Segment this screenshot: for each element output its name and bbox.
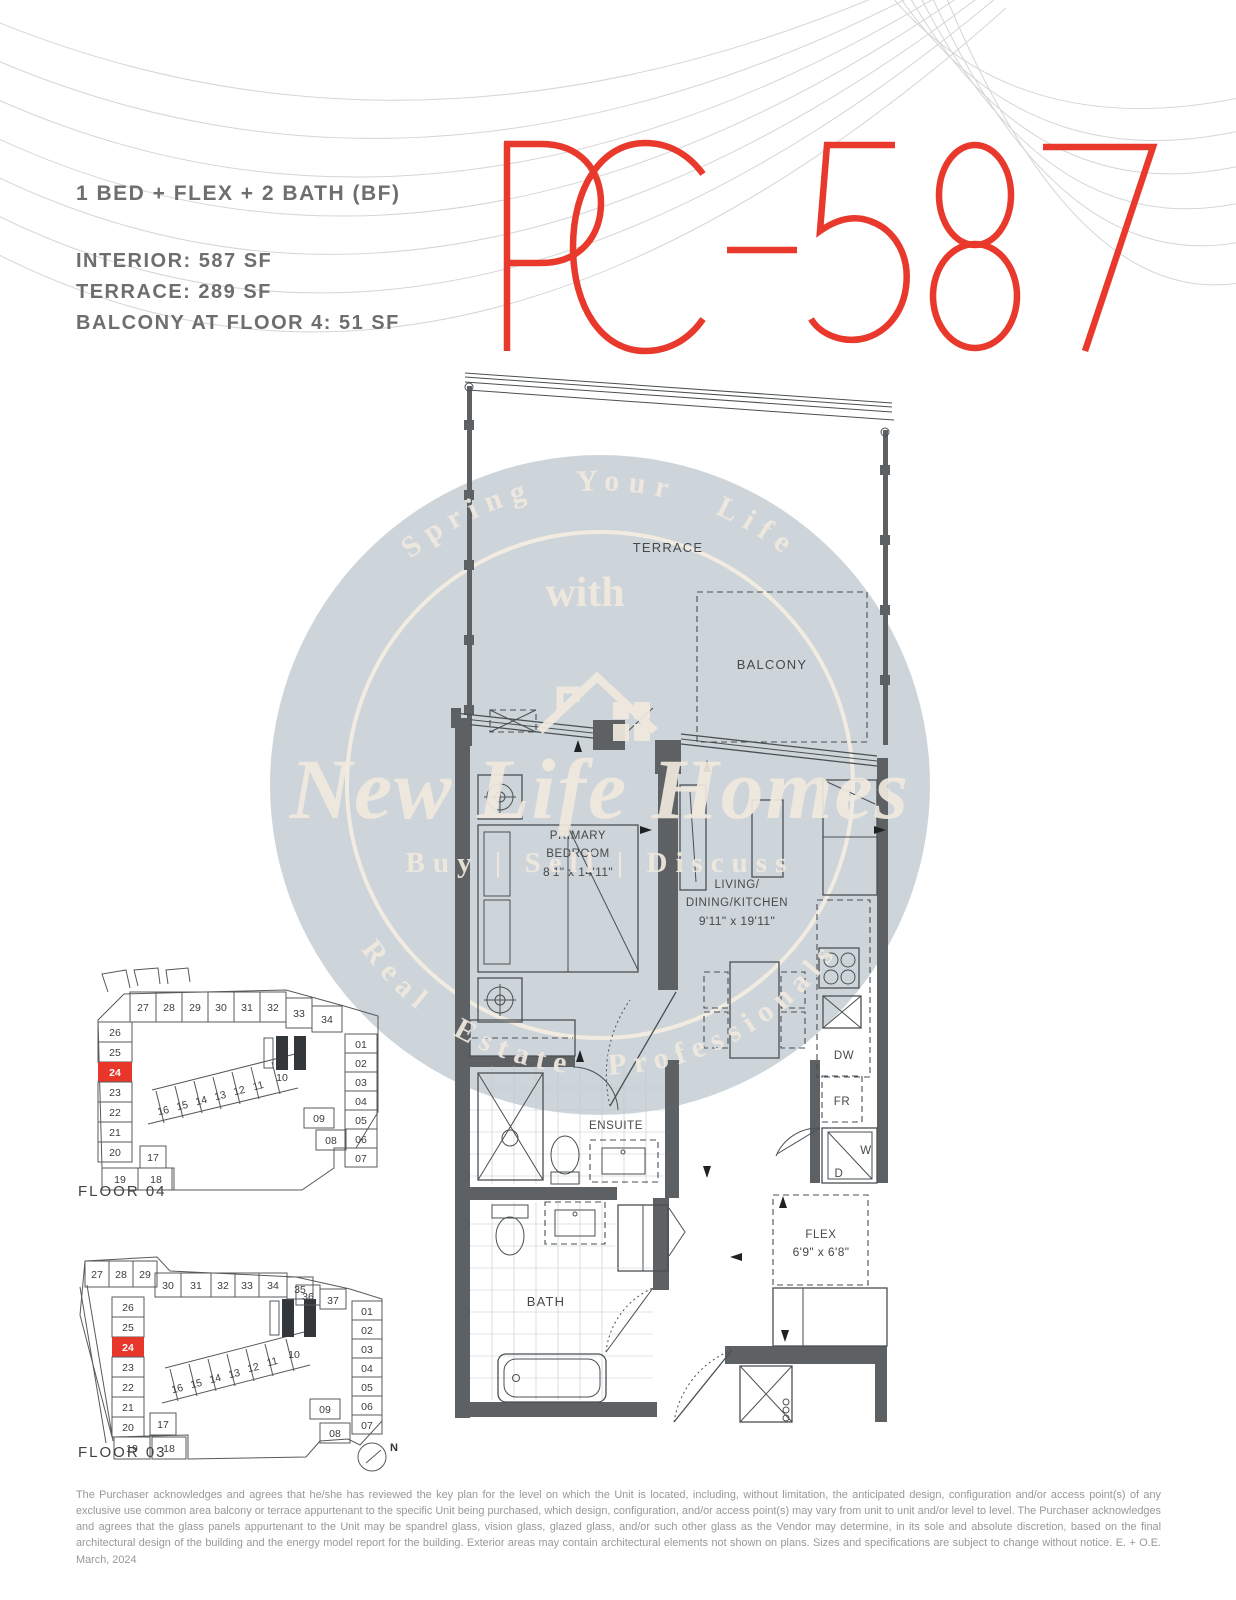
svg-text:29: 29 [139, 1269, 151, 1281]
svg-text:32: 32 [267, 1002, 279, 1014]
dishwasher-label: DW [834, 1050, 854, 1062]
svg-text:11: 11 [252, 1079, 266, 1093]
svg-text:31: 31 [241, 1002, 253, 1014]
svg-text:23: 23 [122, 1362, 134, 1374]
svg-text:22: 22 [122, 1382, 134, 1394]
svg-text:06: 06 [361, 1401, 373, 1413]
unit-type-label: 1 BED + FLEX + 2 BATH (BF) [76, 182, 400, 206]
svg-text:33: 33 [293, 1008, 305, 1020]
svg-text:27: 27 [137, 1002, 149, 1014]
svg-text:21: 21 [109, 1127, 121, 1139]
linen-closet [618, 1205, 685, 1271]
elevator-shaft [740, 1366, 792, 1422]
svg-text:37: 37 [327, 1295, 339, 1307]
bedroom-label-1: PRIMARY [550, 830, 606, 842]
svg-text:36: 36 [302, 1291, 314, 1303]
floor-04-label: FLOOR 04 [78, 1183, 167, 1200]
svg-text:09: 09 [313, 1113, 325, 1125]
svg-text:04: 04 [355, 1096, 367, 1108]
svg-text:32: 32 [217, 1280, 229, 1292]
unit-code-glyphs [495, 138, 1160, 356]
svg-text:12: 12 [246, 1361, 260, 1376]
svg-text:05: 05 [355, 1115, 367, 1127]
balcony-label: BALCONY [737, 657, 808, 672]
svg-text:07: 07 [361, 1420, 373, 1432]
sofa [823, 780, 886, 895]
svg-text:15: 15 [175, 1099, 189, 1114]
flex-dims: 6'9" x 6'8" [793, 1245, 850, 1259]
svg-text:23: 23 [109, 1087, 121, 1099]
living-dims: 9'11" x 19'11" [699, 914, 775, 928]
washer-label: W [860, 1145, 871, 1157]
svg-text:34: 34 [321, 1014, 333, 1026]
terrace-railing [464, 373, 894, 746]
dining-table [704, 962, 805, 1058]
svg-text:03: 03 [355, 1077, 367, 1089]
floor-03-label: FLOOR 03 [78, 1444, 167, 1461]
svg-text:27: 27 [91, 1269, 103, 1281]
svg-text:20: 20 [109, 1147, 121, 1159]
svg-text:02: 02 [355, 1058, 367, 1070]
svg-text:30: 30 [162, 1280, 174, 1292]
terrace-area: TERRACE: 289 SF [76, 277, 400, 308]
svg-text:07: 07 [355, 1153, 367, 1165]
nightstand-lamp-bottom [478, 978, 522, 1022]
ensuite-shower [478, 1073, 543, 1180]
ensuite-label: ENSUITE [589, 1120, 643, 1132]
balcony-area: BALCONY AT FLOOR 4: 51 SF [76, 308, 400, 339]
svg-text:28: 28 [115, 1269, 127, 1281]
svg-text:09: 09 [319, 1404, 331, 1416]
compass-icon: N [358, 1442, 398, 1471]
bath-door [606, 1288, 653, 1352]
bedroom-dims: 8'1" x 14'11" [543, 865, 613, 879]
svg-text:26: 26 [122, 1302, 134, 1314]
svg-text:29: 29 [189, 1002, 201, 1014]
svg-text:33: 33 [241, 1280, 253, 1292]
svg-text:03: 03 [361, 1344, 373, 1356]
svg-text:05: 05 [361, 1382, 373, 1394]
svg-text:17: 17 [157, 1419, 169, 1431]
svg-text:04: 04 [361, 1363, 373, 1375]
living-label-1: LIVING/ [714, 879, 759, 891]
svg-text:10: 10 [288, 1349, 300, 1361]
svg-text:10: 10 [276, 1072, 288, 1084]
svg-text:31: 31 [190, 1280, 202, 1292]
bedroom-label-2: BEDROOM [546, 848, 610, 860]
svg-text:28: 28 [163, 1002, 175, 1014]
unit-code-title: PC-587 [495, 138, 1160, 356]
tv-console [680, 785, 706, 890]
fridge-label: FR [834, 1096, 851, 1108]
ensuite-toilet [551, 1136, 579, 1184]
terrace-label: TERRACE [633, 540, 704, 555]
svg-text:11: 11 [266, 1355, 280, 1369]
svg-text:26: 26 [109, 1027, 121, 1039]
svg-text:22: 22 [109, 1107, 121, 1119]
floor-plan: TERRACE BALCONY [440, 360, 900, 1440]
svg-text:13: 13 [227, 1367, 241, 1382]
svg-text:08: 08 [329, 1428, 341, 1440]
bath-toilet [492, 1205, 528, 1255]
svg-text:02: 02 [361, 1325, 373, 1337]
svg-text:25: 25 [122, 1322, 134, 1334]
flex-label: FLEX [805, 1229, 836, 1241]
bath-vanity [545, 1202, 605, 1244]
bath-label: BATH [527, 1294, 566, 1309]
svg-text:24: 24 [122, 1342, 134, 1354]
svg-text:17: 17 [147, 1152, 159, 1164]
coffee-table [752, 800, 783, 877]
svg-text:08: 08 [325, 1135, 337, 1147]
disclaimer-text: The Purchaser acknowledges and agrees th… [76, 1487, 1161, 1568]
flex-room [730, 1195, 868, 1285]
compass-north-label: N [390, 1442, 398, 1454]
svg-text:14: 14 [208, 1372, 222, 1387]
bedroom-closet [470, 1020, 584, 1062]
svg-text:24: 24 [109, 1067, 121, 1079]
svg-text:01: 01 [361, 1306, 373, 1318]
keyplan-floor-03: 27 28 29 30 31 32 33 34 35 36 37 26 25 2… [60, 1225, 400, 1480]
entry-door [674, 1350, 732, 1422]
interior-area: INTERIOR: 587 SF [76, 246, 400, 277]
svg-text:16: 16 [170, 1382, 184, 1397]
living-label-2: DINING/KITCHEN [686, 897, 788, 909]
juliet-balcony [773, 1288, 887, 1346]
keyplan-04-numbers: 27 28 29 30 31 32 33 34 26 25 24 23 22 2… [109, 1002, 367, 1186]
svg-text:34: 34 [267, 1280, 279, 1292]
dryer-label: D [835, 1168, 844, 1180]
svg-text:14: 14 [194, 1094, 208, 1109]
svg-text:30: 30 [215, 1002, 227, 1014]
svg-text:25: 25 [109, 1047, 121, 1059]
svg-text:13: 13 [213, 1089, 227, 1104]
area-specs: INTERIOR: 587 SF TERRACE: 289 SF BALCONY… [76, 246, 400, 339]
svg-text:15: 15 [189, 1377, 203, 1392]
svg-text:01: 01 [355, 1039, 367, 1051]
keyplan-floor-04: 27 28 29 30 31 32 33 34 26 25 24 23 22 2… [60, 962, 400, 1202]
nightstand-lamp-top [478, 775, 522, 819]
svg-text:21: 21 [122, 1402, 134, 1414]
svg-text:12: 12 [232, 1084, 246, 1099]
svg-text:06: 06 [355, 1134, 367, 1146]
svg-text:16: 16 [156, 1104, 170, 1119]
svg-text:20: 20 [122, 1422, 134, 1434]
